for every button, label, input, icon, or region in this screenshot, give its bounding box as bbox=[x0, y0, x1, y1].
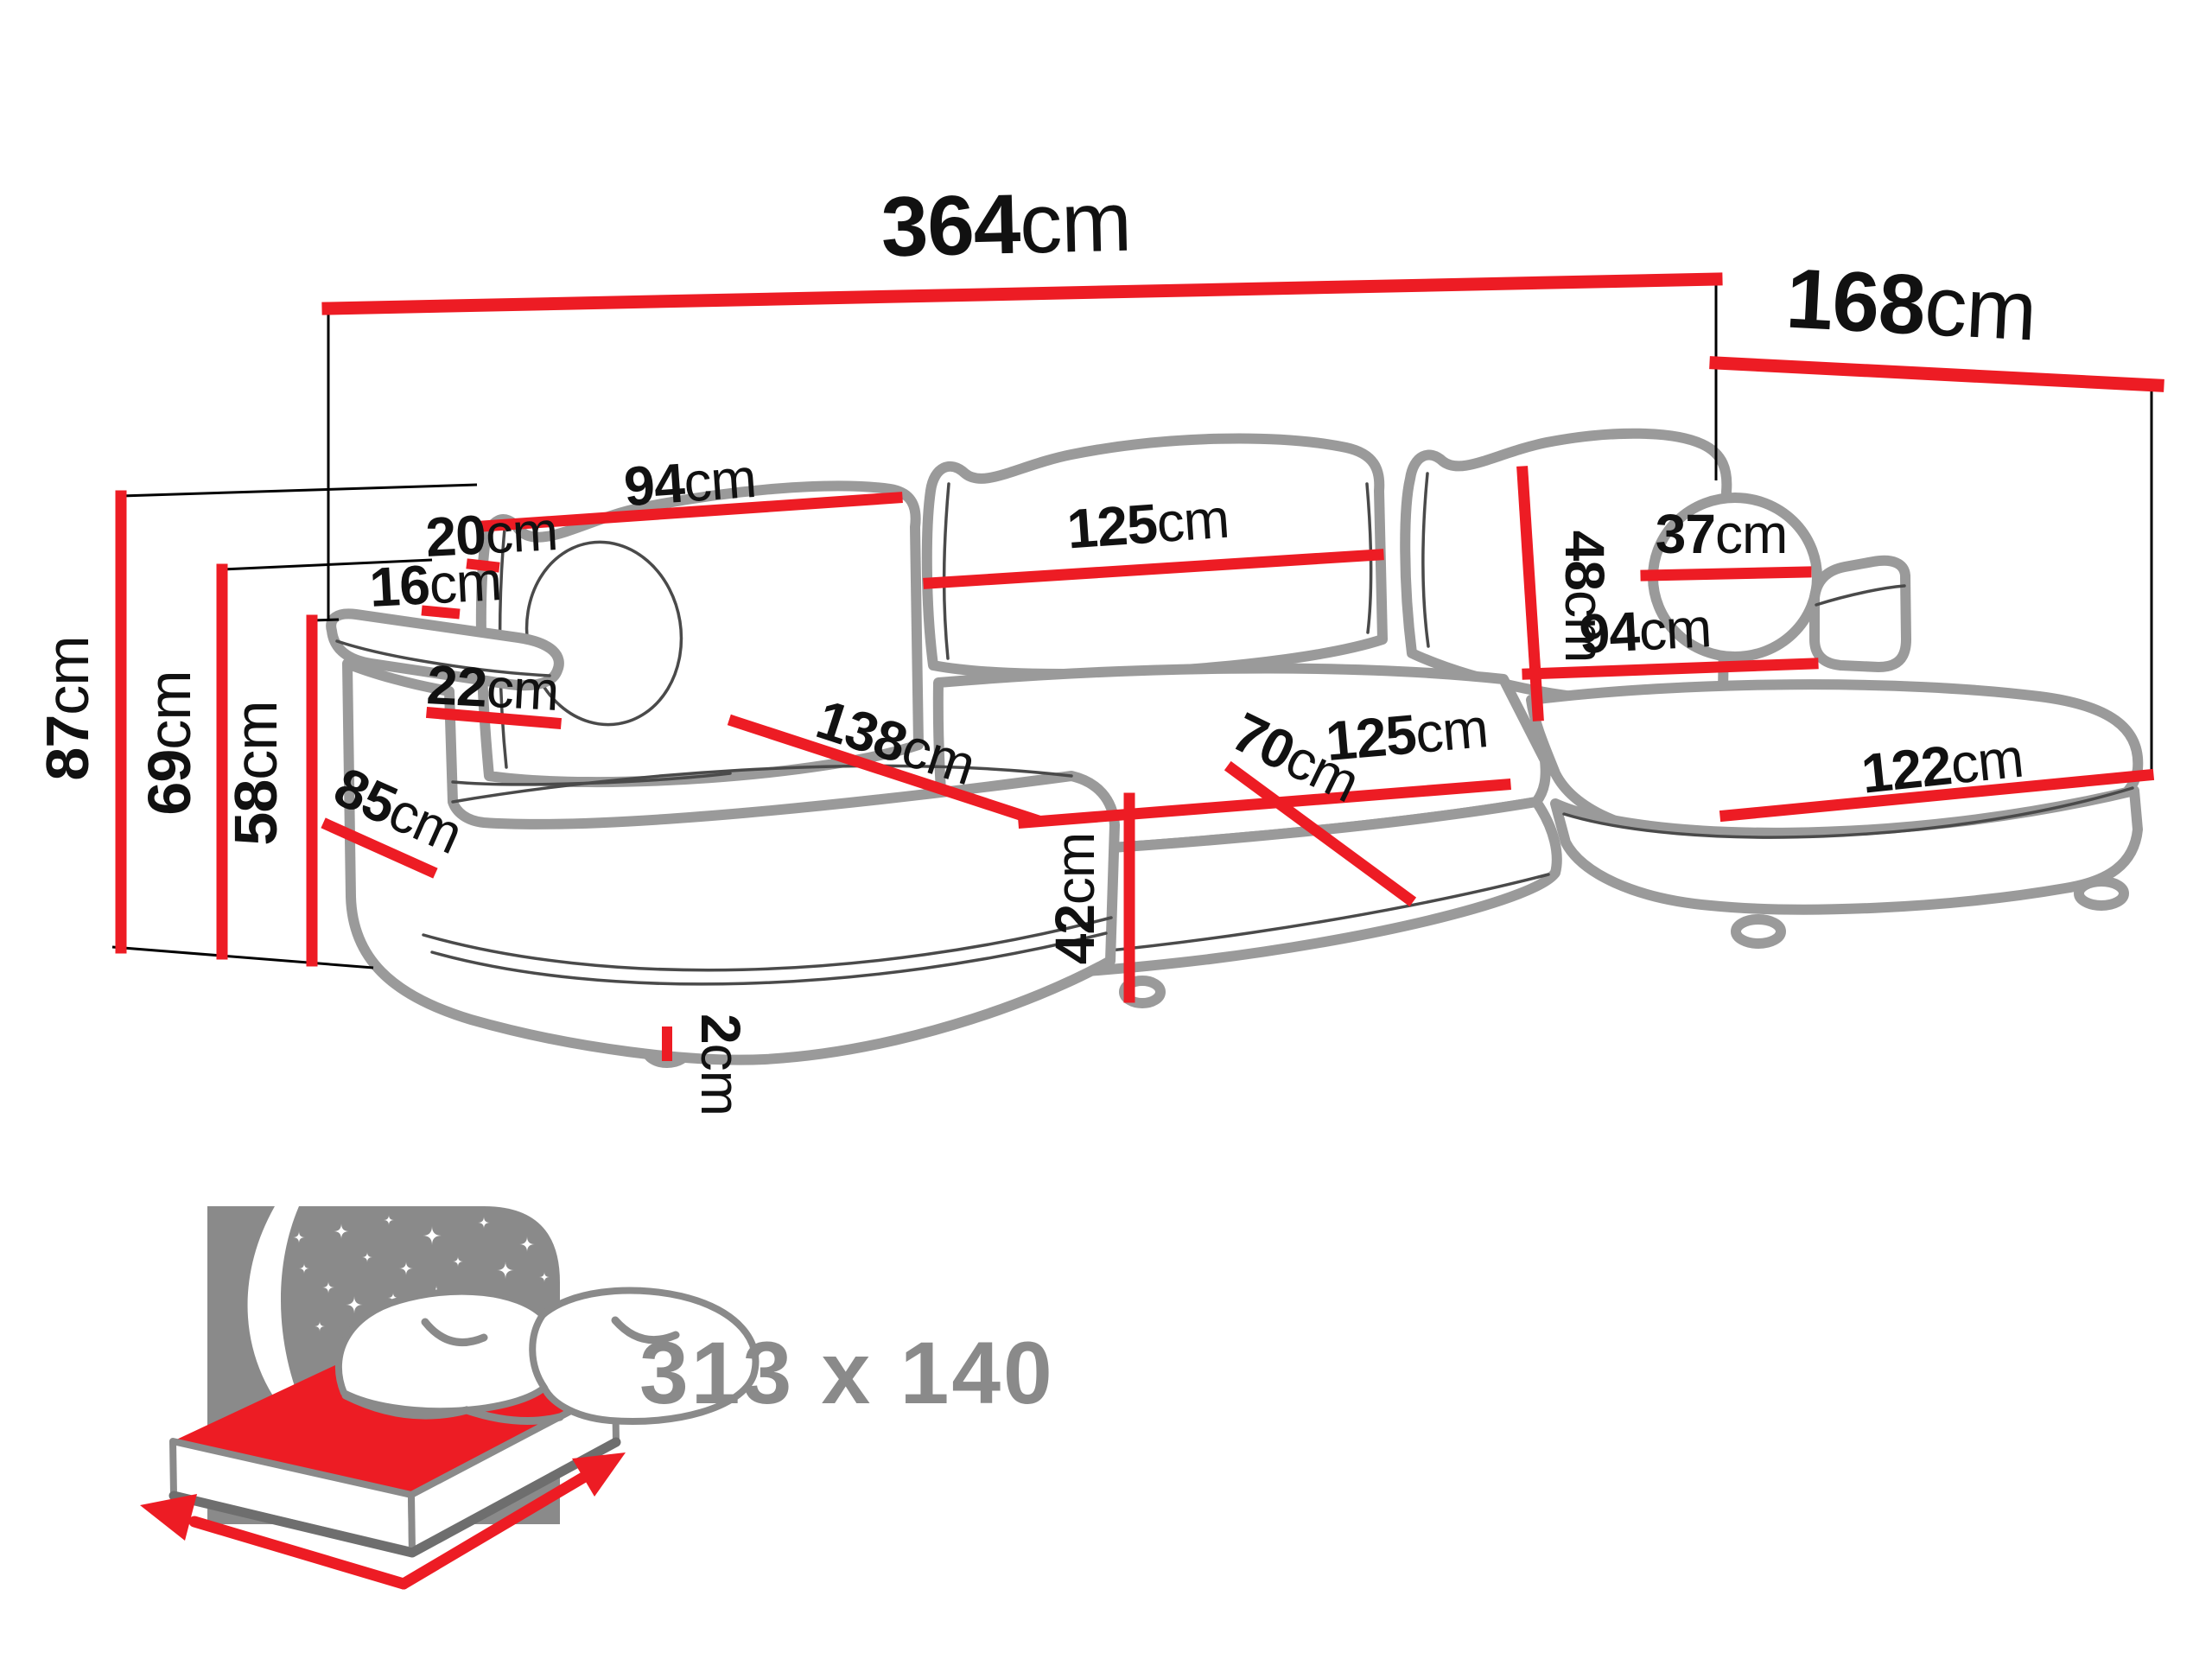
dim-bolster-37: 37cm bbox=[1656, 503, 1788, 565]
dim-backrest-94: 94cm bbox=[622, 447, 758, 518]
dim-height-87: 87cm bbox=[34, 636, 101, 780]
diagram-canvas: 364cm 168cm 87cm 69cm 58cm 20cm 16cm 22c… bbox=[0, 0, 2212, 1659]
dim-line-total-width bbox=[328, 279, 1716, 308]
right-chaise-foot-left bbox=[1736, 919, 1781, 944]
dim-armrest-22: 22cm bbox=[425, 653, 560, 722]
dim-line-total-depth bbox=[1716, 363, 2158, 385]
dim-total-width: 364cm bbox=[880, 174, 1132, 275]
dim-total-depth: 168cm bbox=[1784, 251, 2039, 359]
dim-backrest-125: 125cm bbox=[1065, 487, 1231, 561]
sleeping-size-label: 313 x 140 bbox=[639, 1324, 1055, 1422]
arrow-width-head bbox=[140, 1494, 197, 1541]
sleeping-area-icon: 313 x 140 bbox=[140, 1206, 1055, 1584]
height-87-top-line bbox=[121, 485, 477, 496]
dim-leg-2: 2cm bbox=[690, 1014, 752, 1116]
dim-back-16: 16cm bbox=[368, 550, 503, 619]
dim-seat-height-42: 42cm bbox=[1044, 833, 1106, 965]
sofa-dimension-diagram: 364cm 168cm 87cm 69cm 58cm 20cm 16cm 22c… bbox=[0, 0, 2212, 1659]
floor-line bbox=[112, 947, 373, 968]
dim-line-bolster-37 bbox=[1646, 572, 1806, 575]
dim-height-69: 69cm bbox=[136, 671, 203, 815]
dim-seat-94: 94cm bbox=[1578, 596, 1713, 665]
pillow-left bbox=[339, 1292, 558, 1412]
armrest-block-right bbox=[1815, 561, 1906, 667]
dim-height-58: 58cm bbox=[222, 701, 289, 845]
